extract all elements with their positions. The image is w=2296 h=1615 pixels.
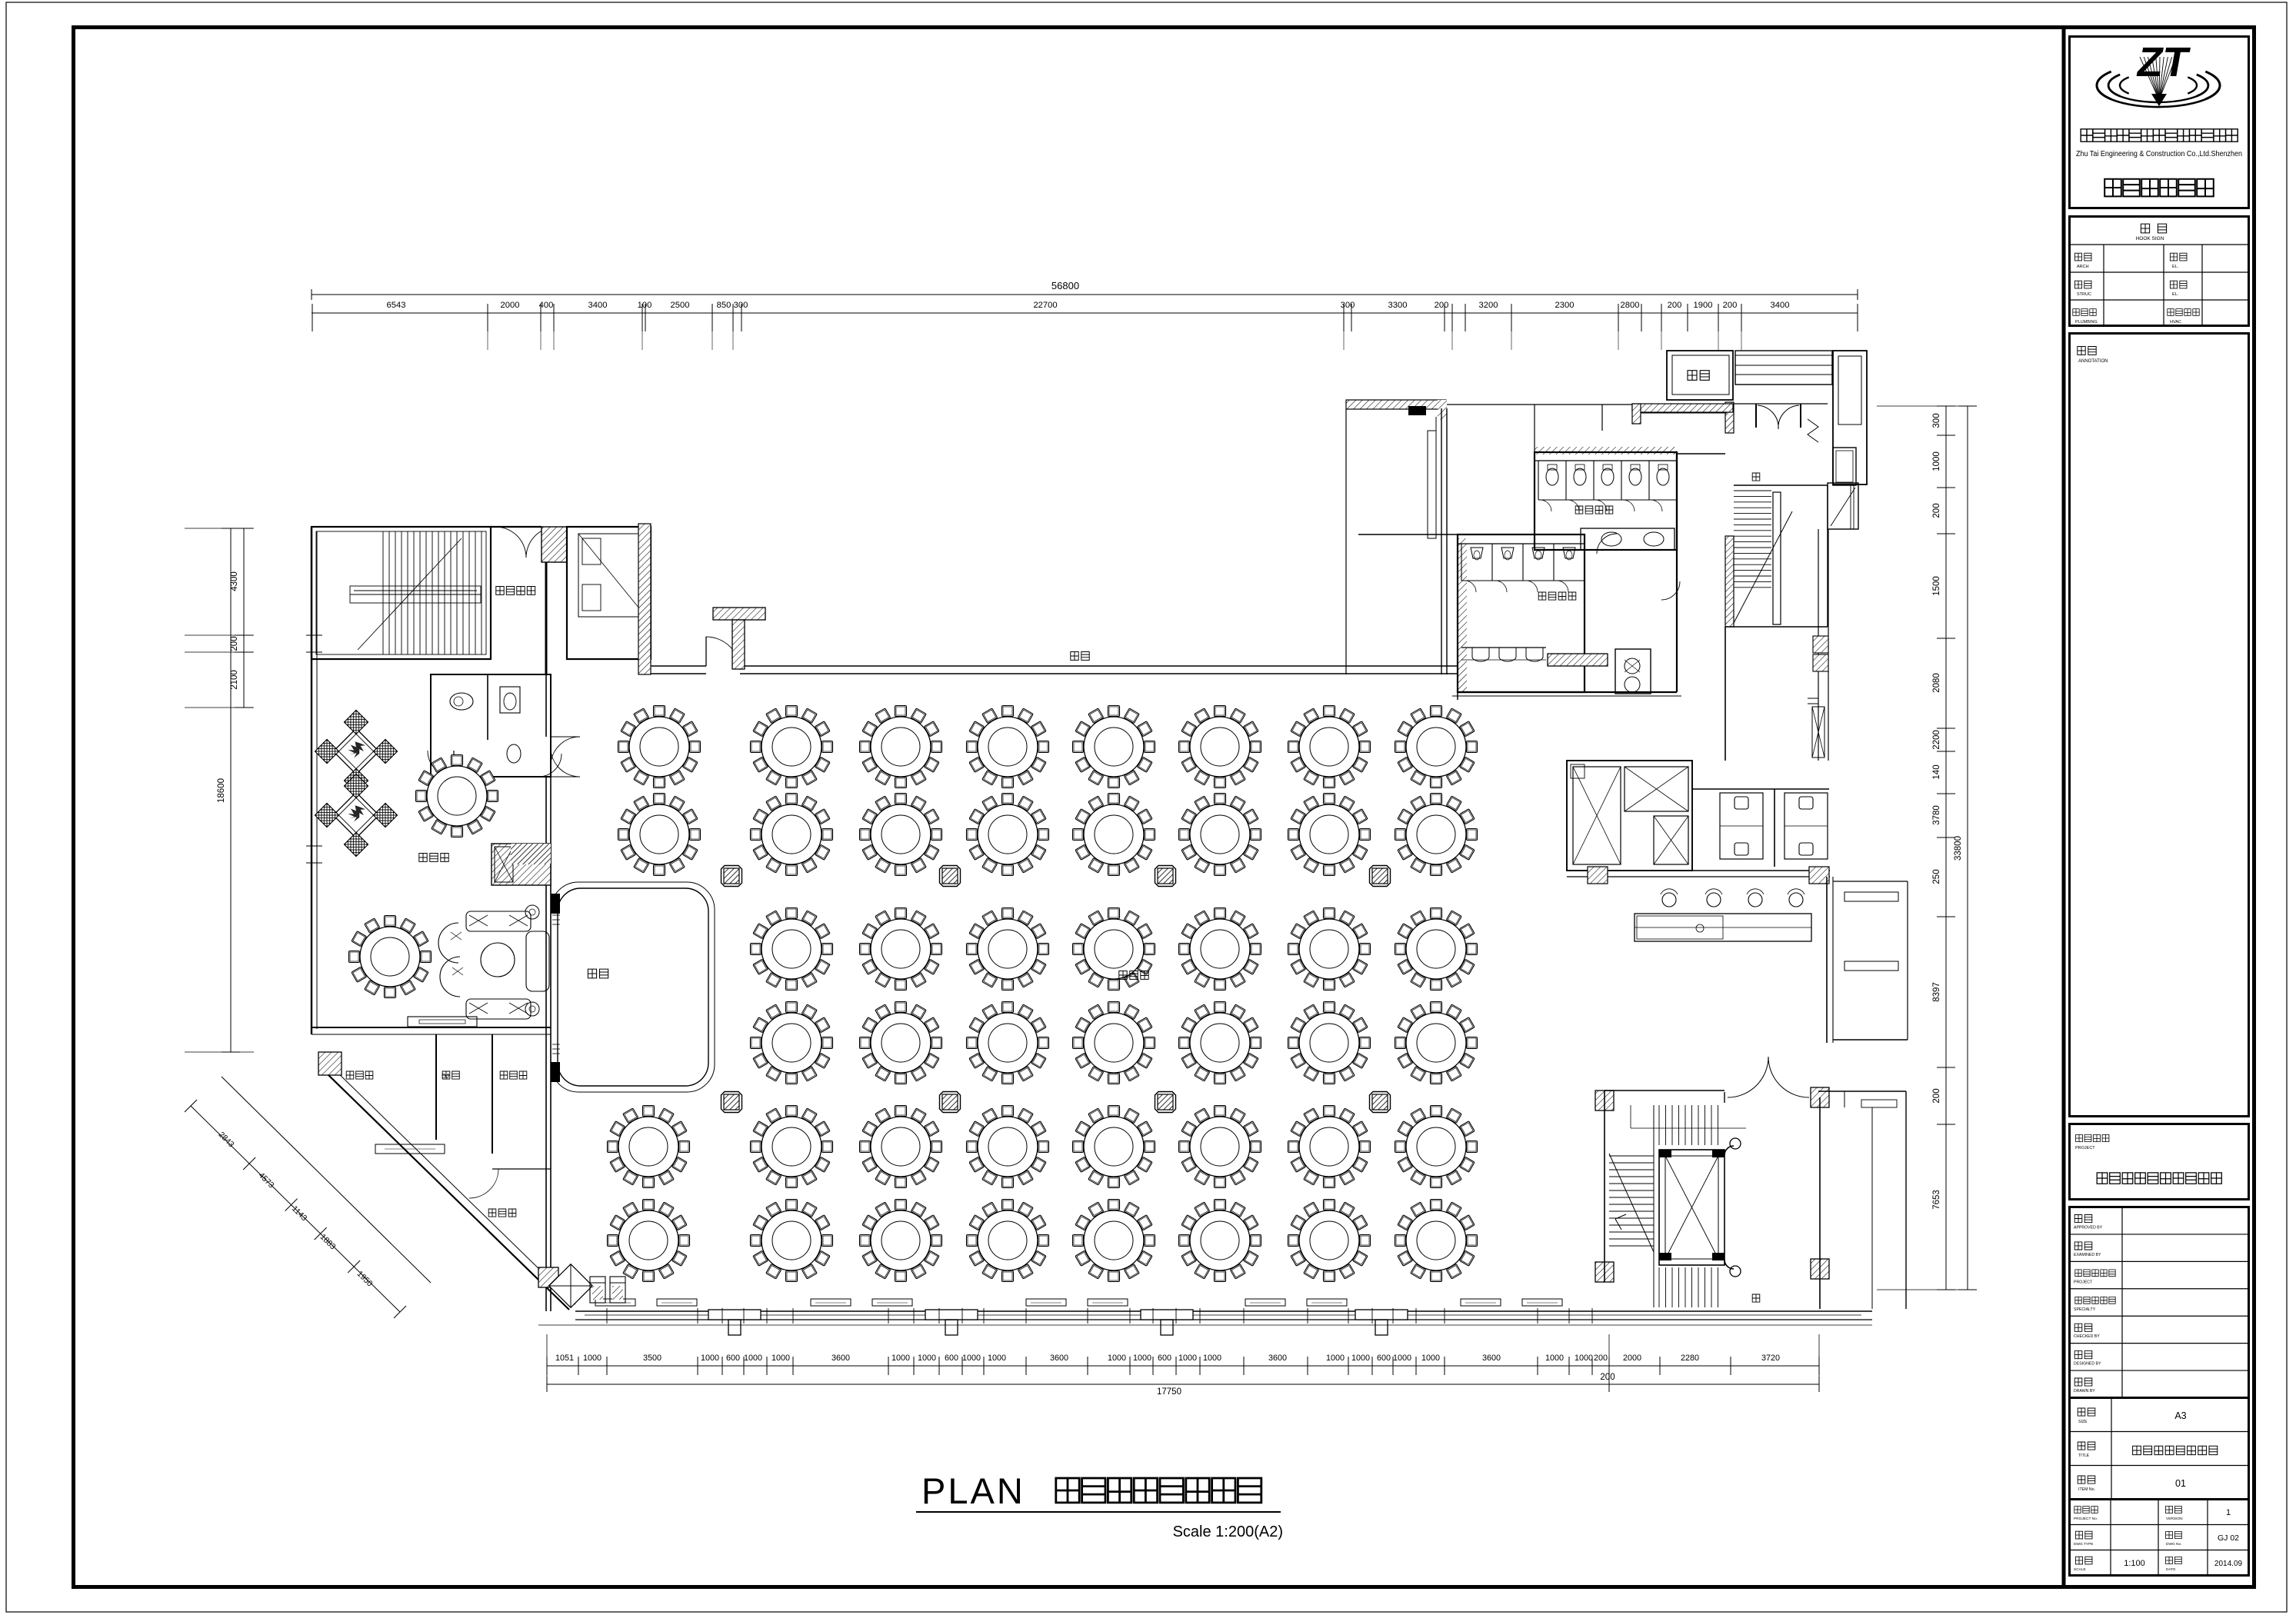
svg-text:ARCH: ARCH <box>2077 265 2089 269</box>
svg-text:DESIGNED BY: DESIGNED BY <box>2074 1362 2101 1367</box>
svg-text:3600: 3600 <box>831 1354 850 1363</box>
svg-text:VERSION: VERSION <box>2166 1517 2183 1521</box>
svg-text:STRUC: STRUC <box>2077 292 2091 297</box>
svg-text:DWG No.: DWG No. <box>2166 1542 2182 1547</box>
svg-text:1000: 1000 <box>988 1354 1006 1363</box>
svg-text:200: 200 <box>230 636 239 651</box>
svg-text:2000: 2000 <box>501 301 520 310</box>
svg-text:1000: 1000 <box>1326 1354 1345 1363</box>
svg-text:1000: 1000 <box>1575 1354 1593 1363</box>
svg-text:ANNOTATION: ANNOTATION <box>2078 359 2108 364</box>
svg-text:3200: 3200 <box>1479 301 1498 310</box>
svg-text:200: 200 <box>1600 1373 1615 1382</box>
svg-text:7653: 7653 <box>1932 1190 1941 1210</box>
svg-text:600: 600 <box>1377 1354 1391 1363</box>
svg-text:HOOK SIGN: HOOK SIGN <box>2136 236 2164 241</box>
svg-text:PROJECT: PROJECT <box>2075 1146 2095 1150</box>
svg-text:600: 600 <box>726 1354 740 1363</box>
svg-text:850: 850 <box>717 301 731 310</box>
svg-text:1000: 1000 <box>583 1354 601 1363</box>
svg-text:Scale 1:200(A2): Scale 1:200(A2) <box>1173 1523 1283 1540</box>
svg-text:18600: 18600 <box>217 778 226 803</box>
svg-text:1000: 1000 <box>962 1354 981 1363</box>
svg-text:1000: 1000 <box>1178 1354 1197 1363</box>
svg-text:2100: 2100 <box>230 670 239 690</box>
svg-text:250: 250 <box>1932 869 1941 884</box>
svg-text:200: 200 <box>1932 503 1941 518</box>
svg-text:1000: 1000 <box>1932 451 1941 471</box>
svg-text:1:100: 1:100 <box>2124 1559 2145 1568</box>
svg-text:2000: 2000 <box>1623 1354 1641 1363</box>
svg-text:A3: A3 <box>2174 1410 2186 1421</box>
svg-text:SCALE: SCALE <box>2074 1567 2086 1572</box>
svg-text:33800: 33800 <box>1954 836 1963 861</box>
svg-text:8397: 8397 <box>1932 982 1941 1002</box>
svg-text:3400: 3400 <box>1771 301 1790 310</box>
svg-text:3600: 3600 <box>1050 1354 1068 1363</box>
svg-text:EXAMINED BY: EXAMINED BY <box>2074 1253 2101 1257</box>
svg-text:3400: 3400 <box>588 301 608 310</box>
svg-text:1900: 1900 <box>1694 301 1713 310</box>
svg-text:2800: 2800 <box>1621 301 1640 310</box>
svg-text:3600: 3600 <box>1268 1354 1287 1363</box>
svg-text:1000: 1000 <box>771 1354 790 1363</box>
svg-text:PROJECT No.: PROJECT No. <box>2074 1517 2098 1521</box>
svg-text:1000: 1000 <box>1108 1354 1126 1363</box>
svg-text:DATE: DATE <box>2166 1567 2175 1572</box>
svg-text:PLAN: PLAN <box>921 1470 1025 1511</box>
svg-text:1000: 1000 <box>918 1354 936 1363</box>
svg-text:2300: 2300 <box>1555 301 1575 310</box>
svg-text:DWG TYPE: DWG TYPE <box>2074 1542 2094 1547</box>
svg-text:56800: 56800 <box>1051 280 1079 291</box>
svg-text:01: 01 <box>2175 1478 2186 1489</box>
svg-text:3720: 3720 <box>1761 1354 1780 1363</box>
svg-text:CHECKED BY: CHECKED BY <box>2074 1334 2100 1339</box>
svg-text:2500: 2500 <box>671 301 690 310</box>
svg-text:GJ 02: GJ 02 <box>2218 1533 2239 1543</box>
svg-text:1000: 1000 <box>891 1354 910 1363</box>
svg-text:200: 200 <box>1435 301 1449 310</box>
svg-text:ITEM No.: ITEM No. <box>2078 1487 2095 1492</box>
svg-text:200: 200 <box>1723 301 1738 310</box>
svg-text:200: 200 <box>1932 1088 1941 1103</box>
svg-text:EL.: EL. <box>2172 265 2179 269</box>
svg-text:600: 600 <box>945 1354 958 1363</box>
svg-text:3500: 3500 <box>643 1354 661 1363</box>
svg-text:2280: 2280 <box>1681 1354 1699 1363</box>
svg-text:1051: 1051 <box>555 1354 574 1363</box>
svg-text:EL.: EL. <box>2172 292 2179 297</box>
svg-text:600: 600 <box>1158 1354 1171 1363</box>
svg-text:1000: 1000 <box>1133 1354 1151 1363</box>
svg-text:200: 200 <box>1668 301 1682 310</box>
svg-text:100: 100 <box>638 301 652 310</box>
svg-text:1: 1 <box>2226 1508 2231 1517</box>
svg-text:200: 200 <box>1594 1354 1608 1363</box>
svg-text:140: 140 <box>1932 764 1941 779</box>
svg-text:PROJECT: PROJECT <box>2074 1280 2093 1284</box>
svg-text:SIZE: SIZE <box>2078 1420 2088 1424</box>
svg-text:22700: 22700 <box>1033 301 1057 310</box>
svg-text:1500: 1500 <box>1932 576 1941 596</box>
svg-text:3300: 3300 <box>1388 301 1408 310</box>
svg-text:300: 300 <box>1932 413 1941 428</box>
svg-text:1000: 1000 <box>1203 1354 1221 1363</box>
svg-text:TITLE: TITLE <box>2078 1453 2090 1458</box>
svg-text:2014.09: 2014.09 <box>2214 1560 2243 1568</box>
svg-text:DRAWN BY: DRAWN BY <box>2074 1389 2095 1394</box>
svg-text:1000: 1000 <box>1351 1354 1370 1363</box>
svg-text:6543: 6543 <box>387 301 406 310</box>
svg-text:1000: 1000 <box>1393 1354 1411 1363</box>
svg-text:SPECIALTY: SPECIALTY <box>2074 1307 2096 1312</box>
svg-text:3600: 3600 <box>1482 1354 1501 1363</box>
svg-text:1000: 1000 <box>1545 1354 1564 1363</box>
svg-text:17750: 17750 <box>1157 1387 1181 1397</box>
svg-text:ZT: ZT <box>2134 38 2193 85</box>
svg-text:1000: 1000 <box>744 1354 762 1363</box>
svg-text:4300: 4300 <box>230 571 239 591</box>
svg-text:2080: 2080 <box>1932 673 1941 693</box>
svg-text:Zhu Tai Engineering & Construc: Zhu Tai Engineering & Construction Co.,L… <box>2076 150 2242 158</box>
svg-text:300: 300 <box>1341 301 1355 310</box>
svg-text:DJ: DJ <box>442 1073 449 1080</box>
svg-text:300: 300 <box>734 301 748 310</box>
svg-text:PLUMBING: PLUMBING <box>2075 320 2098 325</box>
svg-text:1000: 1000 <box>701 1354 719 1363</box>
svg-text:APPROVED BY: APPROVED BY <box>2074 1226 2103 1230</box>
svg-text:3780: 3780 <box>1932 805 1941 825</box>
svg-text:2200: 2200 <box>1932 730 1941 750</box>
svg-text:HVAC: HVAC <box>2170 320 2181 325</box>
svg-text:1000: 1000 <box>1421 1354 1440 1363</box>
